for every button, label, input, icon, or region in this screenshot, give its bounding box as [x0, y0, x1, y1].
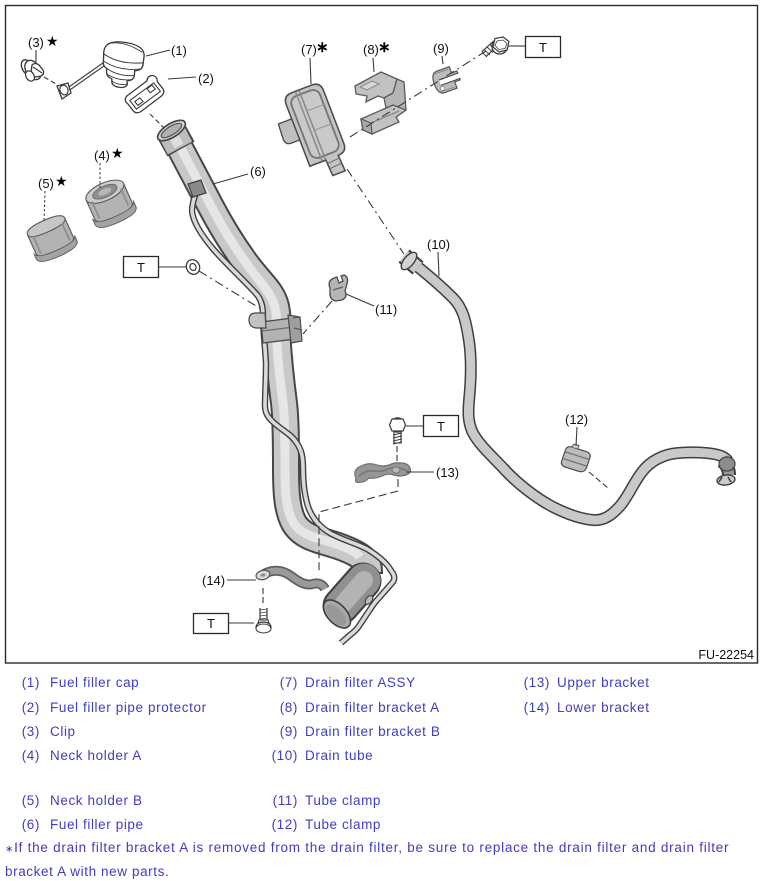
svg-text:(10): (10): [427, 237, 450, 252]
svg-text:(8): (8): [363, 42, 379, 57]
svg-text:T: T: [207, 616, 215, 631]
svg-text:(1): (1): [171, 43, 187, 58]
svg-text:(11): (11): [375, 302, 397, 317]
svg-text:(9): (9): [433, 41, 449, 56]
svg-text:T: T: [539, 40, 547, 55]
svg-text:FU-22254: FU-22254: [698, 648, 754, 662]
svg-text:∗: ∗: [378, 39, 391, 56]
svg-text:∗: ∗: [316, 39, 329, 56]
svg-text:★: ★: [46, 33, 59, 49]
svg-text:(4): (4): [94, 148, 110, 163]
svg-text:(12): (12): [565, 412, 588, 427]
svg-text:(5): (5): [38, 176, 54, 191]
svg-text:(7): (7): [301, 42, 317, 57]
svg-text:T: T: [437, 419, 445, 434]
svg-text:T: T: [137, 260, 145, 275]
svg-text:★: ★: [111, 145, 124, 161]
svg-text:(3): (3): [28, 35, 44, 50]
svg-text:(6): (6): [250, 164, 266, 179]
svg-text:(2): (2): [198, 71, 214, 86]
svg-text:(13): (13): [436, 465, 459, 480]
svg-text:(14): (14): [202, 573, 225, 588]
svg-text:★: ★: [55, 173, 68, 189]
